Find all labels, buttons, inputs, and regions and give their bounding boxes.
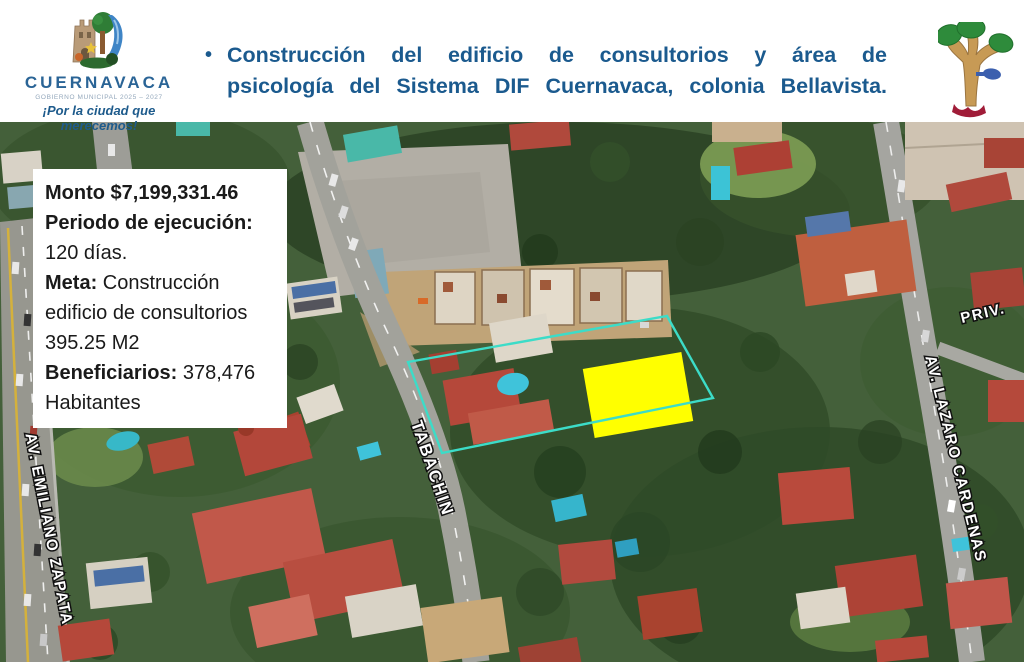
municipal-logo: CUERNAVACA GOBIERNO MUNICIPAL 2025 – 202… [14,6,184,133]
title-bullet: • [205,40,227,102]
slide: CUERNAVACA GOBIERNO MUNICIPAL 2025 – 202… [0,0,1024,662]
info-line-meta: Meta: Construcción [45,268,275,298]
title-line-1: Construcción del edificio de consultorio… [227,40,887,71]
logo-tagline: ¡Por la ciudad que merecemos! [14,103,184,133]
logo-emblem-icon [67,6,131,72]
info-line-monto: Monto $7,199,331.46 [45,178,275,208]
info-line-beneficiarios: Beneficiarios: 378,476 [45,358,275,388]
header: CUERNAVACA GOBIERNO MUNICIPAL 2025 – 202… [0,0,1024,122]
info-box: Monto $7,199,331.46 Periodo de ejecución… [33,169,287,428]
title-line-2: psicología del Sistema DIF Cuernavaca, c… [227,71,887,102]
info-line-habitantes: Habitantes [45,388,275,418]
tree-glyph-icon [938,22,1014,118]
logo-subtitle: GOBIERNO MUNICIPAL 2025 – 2027 [14,94,184,101]
info-line-meta-3: 395.25 M2 [45,328,275,358]
logo-name: CUERNAVACA [14,73,184,93]
info-line-periodo: Periodo de ejecución: [45,208,275,238]
info-line-dias: 120 días. [45,238,275,268]
slide-title: • Construcción del edificio de consultor… [205,40,887,102]
info-line-meta-2: edificio de consultorios [45,298,275,328]
